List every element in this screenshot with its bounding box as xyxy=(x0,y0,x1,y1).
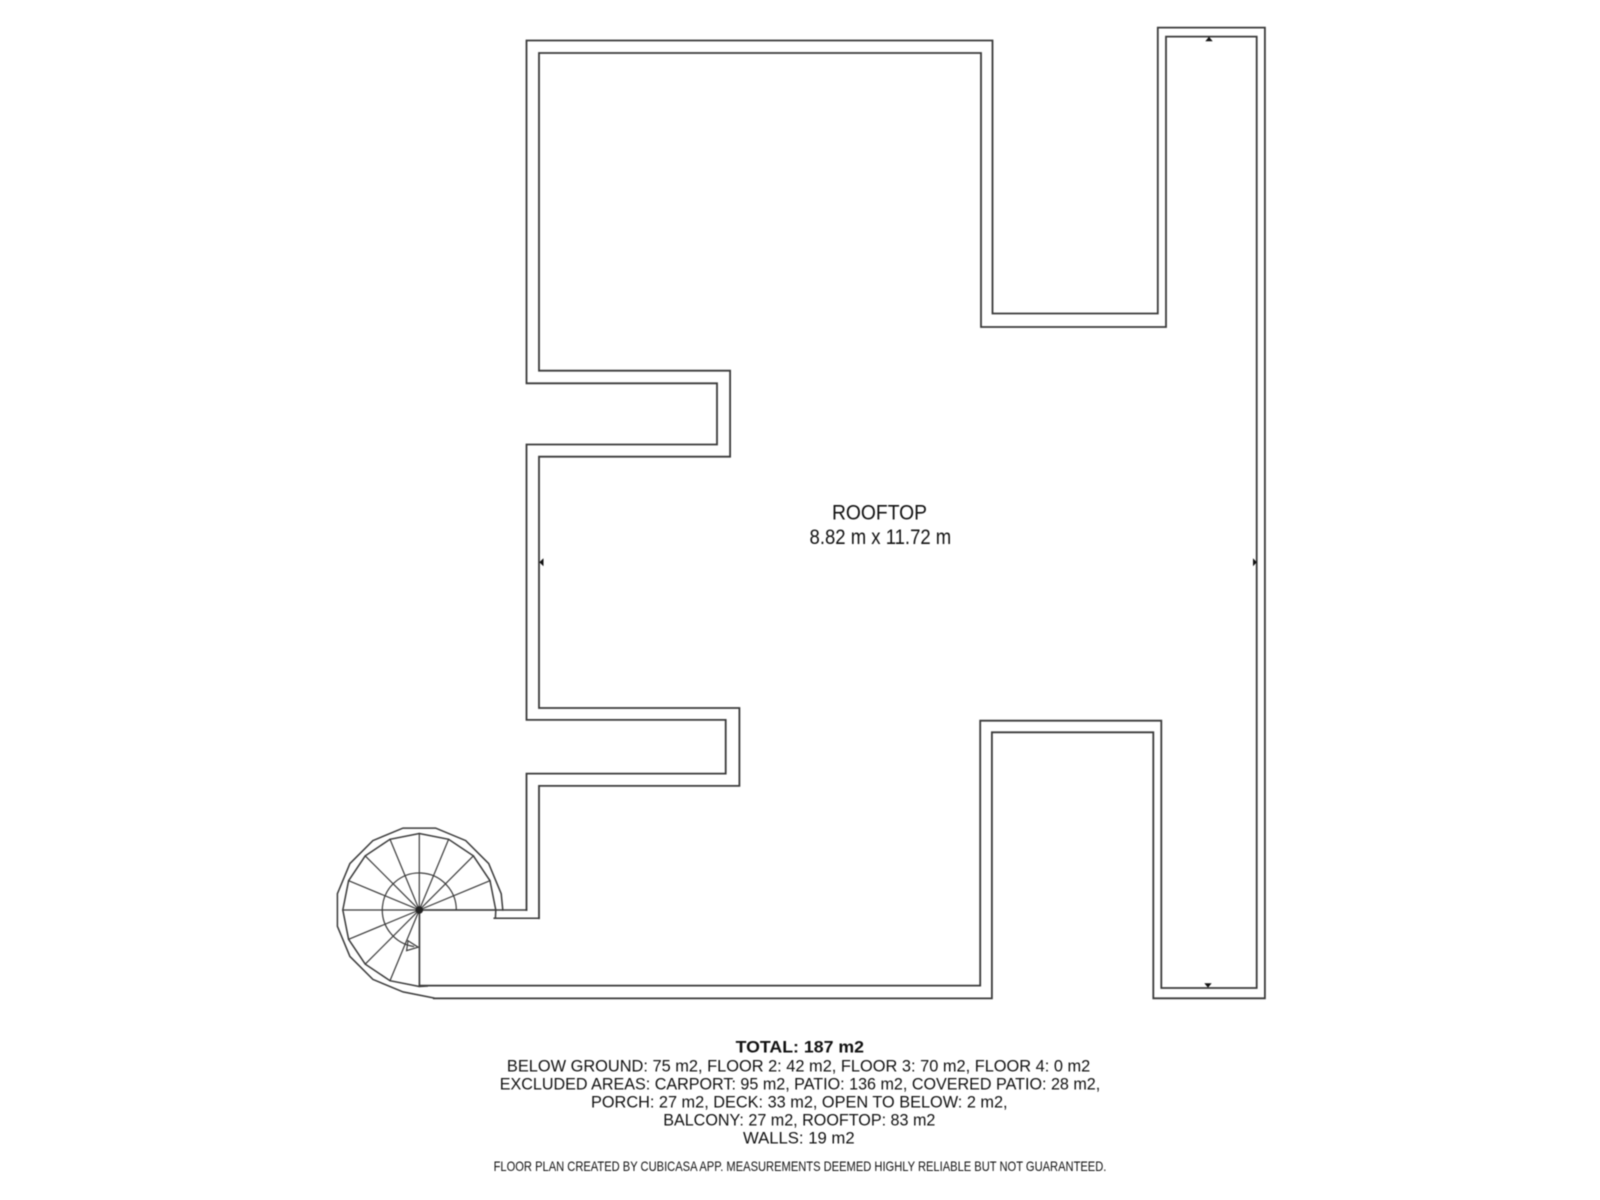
svg-text:PORCH: 27 m2, DECK: 33 m2, OPE: PORCH: 27 m2, DECK: 33 m2, OPEN TO BELOW… xyxy=(591,1092,1008,1111)
svg-text:8.82 m x 11.72 m: 8.82 m x 11.72 m xyxy=(810,526,952,549)
svg-text:ROOFTOP: ROOFTOP xyxy=(832,502,927,525)
svg-text:TOTAL: 187 m2: TOTAL: 187 m2 xyxy=(736,1037,864,1056)
svg-text:BELOW GROUND: 75 m2, FLOOR 2:: BELOW GROUND: 75 m2, FLOOR 2: 42 m2, FLO… xyxy=(507,1056,1090,1075)
svg-text:WALLS: 19 m2: WALLS: 19 m2 xyxy=(743,1128,855,1147)
svg-text:BALCONY: 27 m2, ROOFTOP: 83 m2: BALCONY: 27 m2, ROOFTOP: 83 m2 xyxy=(663,1110,935,1129)
svg-text:FLOOR PLAN CREATED BY CUBICASA: FLOOR PLAN CREATED BY CUBICASA APP. MEAS… xyxy=(494,1158,1107,1174)
svg-text:EXCLUDED AREAS: CARPORT: 95 m2: EXCLUDED AREAS: CARPORT: 95 m2, PATIO: 1… xyxy=(500,1074,1101,1093)
